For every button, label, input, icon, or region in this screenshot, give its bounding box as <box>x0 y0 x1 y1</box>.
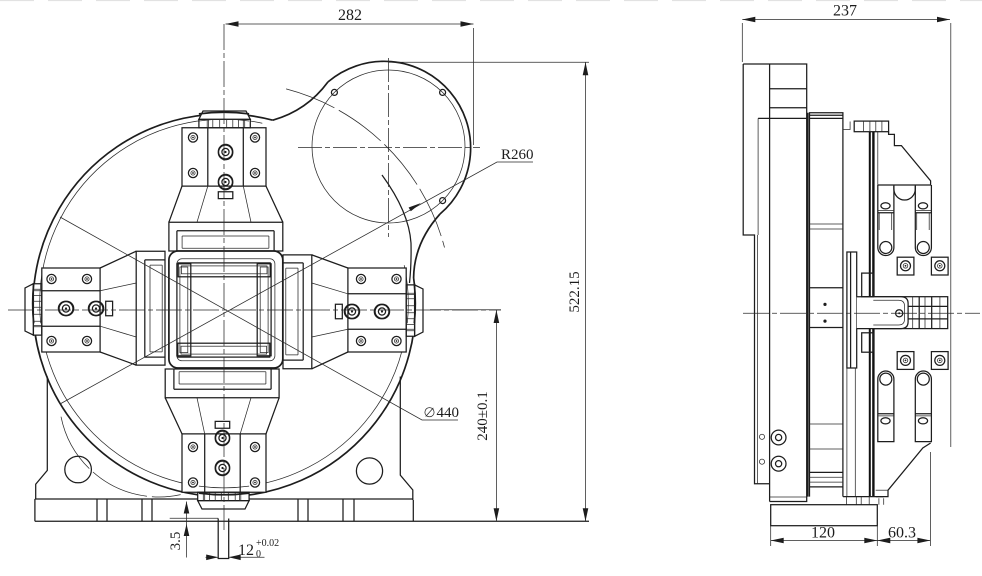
svg-text:440: 440 <box>437 405 460 421</box>
svg-text:12: 12 <box>238 542 254 559</box>
svg-text:+0.02: +0.02 <box>256 538 279 549</box>
svg-text:120: 120 <box>811 525 835 542</box>
svg-text:0: 0 <box>256 549 261 560</box>
svg-text:3.5: 3.5 <box>168 532 184 551</box>
svg-text:240±0.1: 240±0.1 <box>475 391 491 440</box>
svg-text:522.15: 522.15 <box>567 271 583 312</box>
svg-text:282: 282 <box>338 7 362 24</box>
svg-text:R260: R260 <box>501 147 534 163</box>
svg-text:60.3: 60.3 <box>888 525 916 542</box>
svg-text:237: 237 <box>833 3 857 20</box>
